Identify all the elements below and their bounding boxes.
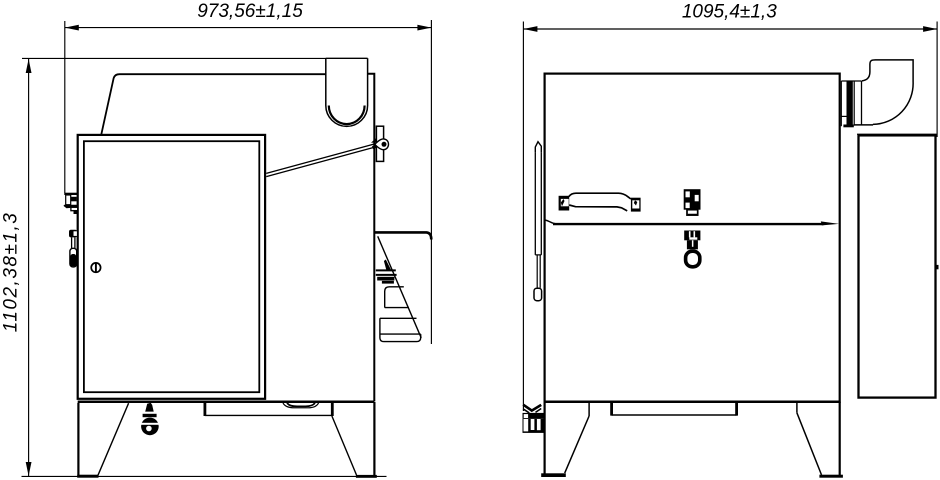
svg-text:1102,38±1,3: 1102,38±1,3 bbox=[1, 212, 22, 333]
svg-text:1095,4±1,3: 1095,4±1,3 bbox=[682, 2, 777, 23]
svg-text:973,56±1,15: 973,56±1,15 bbox=[197, 1, 303, 22]
